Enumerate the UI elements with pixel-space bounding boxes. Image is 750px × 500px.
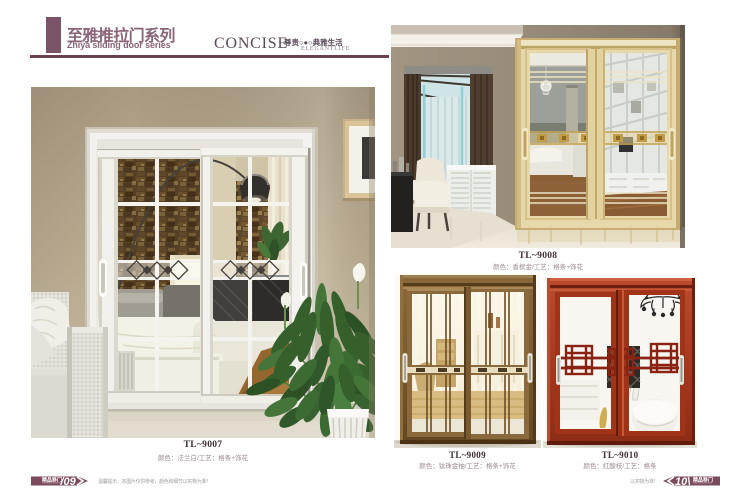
svg-text:10\: 10\ <box>675 476 690 488</box>
svg-text:精品移门: 精品移门 <box>42 477 62 484</box>
svg-text:/09: /09 <box>60 476 77 488</box>
svg-text:精品移门: 精品移门 <box>693 477 713 484</box>
